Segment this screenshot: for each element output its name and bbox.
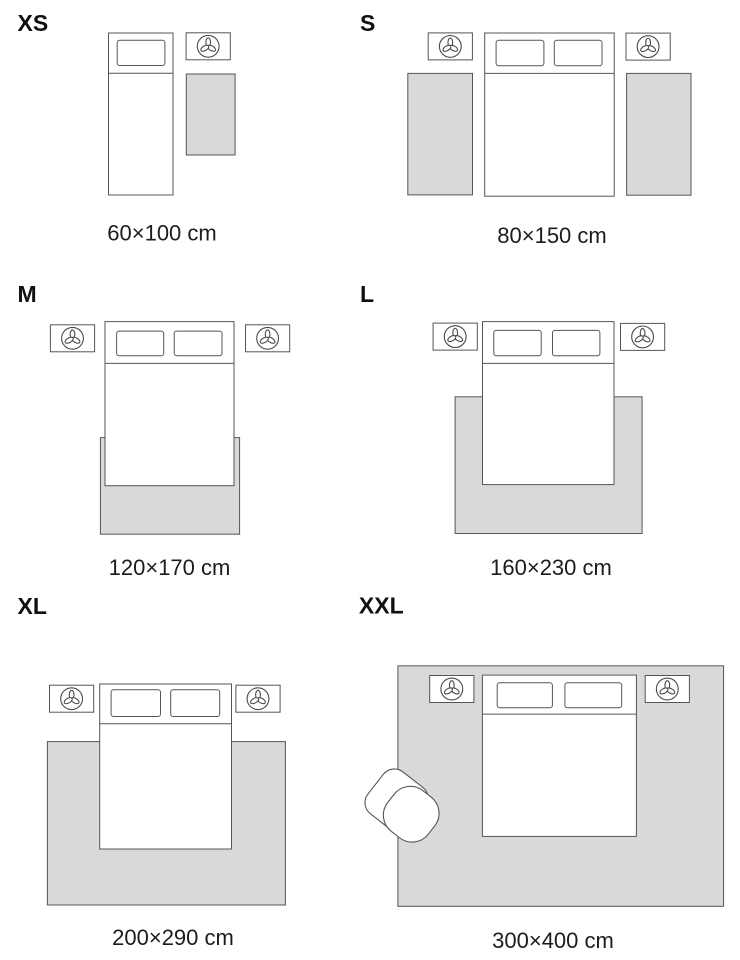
svg-text:M: M [18, 281, 37, 307]
svg-text:160×230 cm: 160×230 cm [490, 555, 612, 580]
svg-text:XXL: XXL [359, 592, 404, 618]
svg-text:120×170 cm: 120×170 cm [109, 555, 231, 580]
svg-text:L: L [360, 281, 374, 307]
svg-text:XL: XL [18, 593, 47, 619]
svg-text:300×400 cm: 300×400 cm [492, 928, 614, 953]
svg-text:60×100 cm: 60×100 cm [107, 221, 216, 246]
svg-text:80×150 cm: 80×150 cm [497, 223, 606, 248]
svg-text:XS: XS [18, 10, 49, 36]
svg-text:S: S [360, 10, 375, 36]
svg-text:200×290 cm: 200×290 cm [112, 925, 234, 950]
